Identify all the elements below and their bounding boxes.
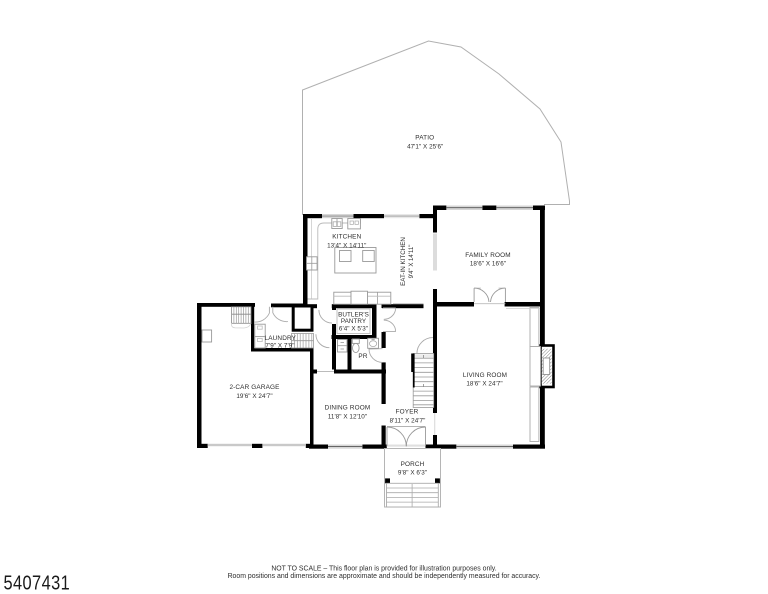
svg-text:FAMILY ROOM: FAMILY ROOM: [465, 252, 510, 259]
svg-text:PANTRY: PANTRY: [341, 318, 367, 325]
svg-text:LAUNDRY: LAUNDRY: [265, 335, 297, 342]
svg-text:8'11" X 24'7": 8'11" X 24'7": [390, 418, 426, 425]
svg-text:6'4" X 5'3": 6'4" X 5'3": [339, 325, 368, 332]
svg-text:18'6" X 24'7": 18'6" X 24'7": [466, 380, 502, 387]
svg-text:19'6" X 24'7": 19'6" X 24'7": [236, 393, 272, 400]
svg-text:Room positions and dimensions: Room positions and dimensions are approx…: [228, 573, 541, 580]
svg-text:13'4" X 14'11": 13'4" X 14'11": [327, 243, 366, 250]
svg-text:PORCH: PORCH: [401, 461, 425, 468]
svg-text:NOT TO SCALE – This floor plan: NOT TO SCALE – This floor plan is provid…: [271, 566, 496, 573]
svg-text:5407431: 5407431: [4, 571, 71, 594]
svg-text:FOYER: FOYER: [396, 409, 419, 416]
svg-text:EAT-IN KITCHEN: EAT-IN KITCHEN: [400, 237, 407, 286]
svg-text:9'8" X 6'3": 9'8" X 6'3": [398, 469, 427, 476]
svg-text:DINING ROOM: DINING ROOM: [325, 404, 371, 411]
svg-text:KITCHEN: KITCHEN: [332, 233, 361, 240]
svg-text:9'4" X 14'11": 9'4" X 14'11": [409, 245, 415, 279]
svg-text:11'8" X 12'10": 11'8" X 12'10": [328, 414, 367, 421]
svg-text:PATIO: PATIO: [415, 135, 434, 142]
svg-text:7'9" X 7'9": 7'9" X 7'9": [265, 342, 294, 349]
svg-text:2-CAR GARAGE: 2-CAR GARAGE: [229, 384, 279, 391]
svg-text:18'6" X 16'6": 18'6" X 16'6": [470, 260, 506, 267]
svg-text:PR: PR: [358, 353, 367, 360]
svg-text:LIVING ROOM: LIVING ROOM: [463, 372, 507, 379]
svg-text:47'1" X 25'6": 47'1" X 25'6": [407, 144, 443, 151]
